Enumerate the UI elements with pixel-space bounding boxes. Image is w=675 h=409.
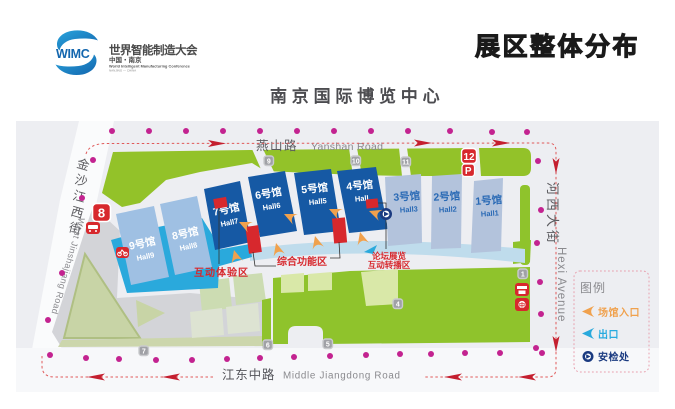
svg-text:综合功能区: 综合功能区 <box>277 255 327 268</box>
svg-text:9: 9 <box>267 158 271 165</box>
svg-text:P: P <box>465 166 472 177</box>
svg-text:Hall5: Hall5 <box>308 196 327 207</box>
svg-text:燕山路: 燕山路 <box>256 138 298 153</box>
svg-text:11: 11 <box>402 159 410 166</box>
svg-text:NANJING — CHINA: NANJING — CHINA <box>109 69 136 73</box>
svg-text:中国・南京: 中国・南京 <box>109 55 142 64</box>
svg-text:Middle Jiangdong Road: Middle Jiangdong Road <box>283 371 401 382</box>
svg-text:出口: 出口 <box>598 328 619 341</box>
svg-text:Hall2: Hall2 <box>439 205 457 215</box>
svg-text:中: 中 <box>519 301 525 309</box>
svg-text:展区整体分布: 展区整体分布 <box>475 32 640 61</box>
svg-text:7: 7 <box>142 348 146 355</box>
svg-text:5: 5 <box>326 341 330 348</box>
svg-text:2号馆: 2号馆 <box>433 189 461 203</box>
svg-text:江东中路: 江东中路 <box>222 367 275 382</box>
svg-text:安检处: 安检处 <box>598 351 630 364</box>
svg-text:Hall3: Hall3 <box>400 204 419 214</box>
svg-text:WIMC: WIMC <box>56 47 90 61</box>
svg-text:10: 10 <box>352 158 360 165</box>
svg-text:12: 12 <box>463 152 475 163</box>
svg-text:场馆入口: 场馆入口 <box>598 306 640 319</box>
svg-text:河西大街: 河西大街 <box>545 182 560 246</box>
svg-text:8: 8 <box>98 206 105 221</box>
svg-text:4号馆: 4号馆 <box>346 178 374 193</box>
svg-text:世界智能制造大会: 世界智能制造大会 <box>109 43 198 57</box>
svg-text:1: 1 <box>521 271 525 278</box>
svg-text:6: 6 <box>266 342 270 349</box>
svg-text:1号馆: 1号馆 <box>475 193 503 208</box>
svg-text:南京国际博览中心: 南京国际博览中心 <box>270 86 444 106</box>
svg-text:Hall1: Hall1 <box>481 208 500 218</box>
svg-text:4: 4 <box>396 301 400 308</box>
svg-text:Hexi Avenue: Hexi Avenue <box>555 247 567 322</box>
svg-text:图例: 图例 <box>580 281 606 295</box>
svg-text:互动转播区: 互动转播区 <box>368 260 411 270</box>
svg-text:互动体验区: 互动体验区 <box>194 266 249 279</box>
svg-text:3号馆: 3号馆 <box>393 189 421 204</box>
